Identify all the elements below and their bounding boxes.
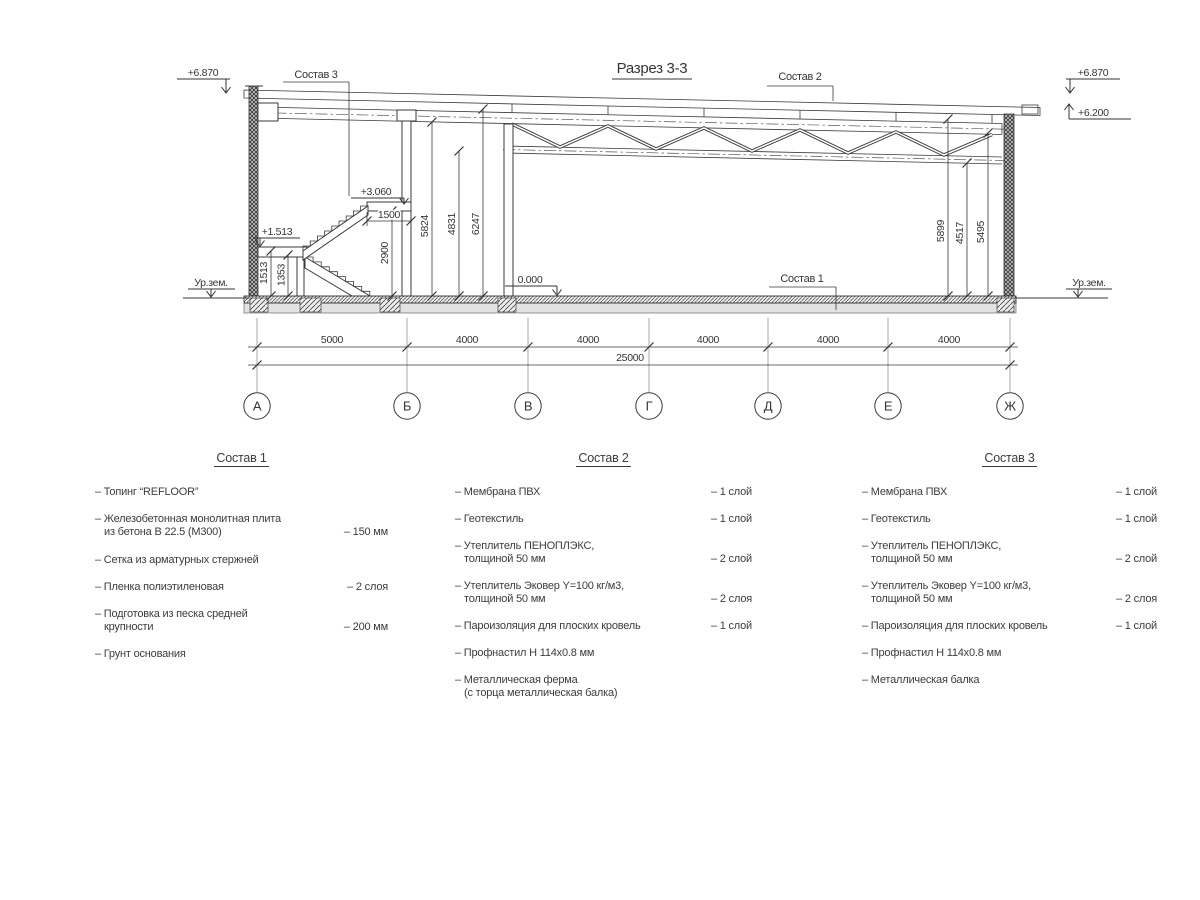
vdim-4517: 4517 bbox=[954, 159, 972, 301]
vdim-4831: 4831 bbox=[446, 147, 464, 301]
elevation-label: +1.513 bbox=[262, 226, 293, 238]
drawing-title: Разрез 3-3 bbox=[612, 60, 692, 79]
elevation-mark-stair-top: +3.060 bbox=[351, 186, 409, 204]
material-item: – Профнастил Н 114х0.8 мм bbox=[862, 647, 1157, 660]
vdim-label: 6247 bbox=[470, 212, 482, 235]
upper-flight bbox=[303, 206, 368, 260]
elevation-label: +6.200 bbox=[1078, 107, 1109, 119]
vdim-6247: 6247 bbox=[470, 105, 488, 301]
axis-bubble: Е bbox=[875, 393, 901, 419]
axis-bubble: Д bbox=[755, 393, 781, 419]
axis-label: Д bbox=[764, 399, 773, 414]
material-item: – Сетка из арматурных стержней bbox=[95, 554, 388, 567]
column-cap bbox=[397, 110, 416, 121]
axis-bubble: В bbox=[515, 393, 541, 419]
axis-label: В bbox=[524, 399, 532, 414]
ground-label: Ур.зем. bbox=[1072, 277, 1106, 289]
page-title: Разрез 3-3 bbox=[617, 60, 688, 77]
vdim-label: 4831 bbox=[446, 212, 458, 235]
composition-1: Состав 1 – Топинг “REFLOOR” – Железобето… bbox=[95, 452, 388, 675]
vdim-label: 4517 bbox=[954, 221, 966, 244]
elevation-mark-stair-mid: +1.513 bbox=[253, 226, 300, 247]
axis-label: Б bbox=[403, 399, 411, 414]
vdim-label: 5824 bbox=[419, 214, 431, 237]
vdim-5824: 5824 bbox=[419, 118, 437, 301]
axis-bubble: Г bbox=[636, 393, 662, 419]
leader-label: Состав 3 bbox=[294, 69, 337, 81]
stair-support-wall bbox=[297, 257, 304, 296]
vdim-label: 2900 bbox=[379, 241, 391, 264]
column-truss-end bbox=[504, 124, 513, 296]
span-dim-label: 4000 bbox=[577, 334, 600, 346]
material-item: – Утеплитель ПЕНОПЛЭКС,толщиной 50 мм – … bbox=[455, 540, 752, 566]
span-dim-label: 5000 bbox=[321, 334, 344, 346]
span-dim-label: 4000 bbox=[817, 334, 840, 346]
elevation-label: +3.060 bbox=[361, 186, 392, 198]
section-drawing: Разрез 3-3 bbox=[0, 0, 1200, 445]
axis-label: Г bbox=[646, 399, 653, 414]
vdim-label: 5495 bbox=[975, 220, 987, 243]
composition-2: Состав 2 – Мембрана ПВХ – 1 слой – Геоте… bbox=[455, 452, 752, 714]
material-item: – Пароизоляция для плоских кровель – 1 с… bbox=[455, 620, 752, 633]
drawing-sheet: Разрез 3-3 bbox=[0, 0, 1200, 900]
roof-assembly bbox=[244, 86, 1040, 116]
span-dim-label: 4000 bbox=[697, 334, 720, 346]
elevation-mark-top-left: +6.870 bbox=[177, 67, 231, 93]
material-item: – Пленка полиэтиленовая – 2 слоя bbox=[95, 581, 388, 594]
material-item: – Железобетонная монолитная плитаиз бето… bbox=[95, 513, 388, 539]
elevation-label: +6.870 bbox=[188, 67, 219, 79]
material-item: – Металлическая балка bbox=[862, 674, 1157, 687]
material-item: – Утеплитель ПЕНОПЛЭКС,толщиной 50 мм – … bbox=[862, 540, 1157, 566]
vdim-label: 1353 bbox=[276, 263, 288, 286]
material-item: – Грунт основания bbox=[95, 648, 388, 661]
leader-sostav3: Состав 3 bbox=[283, 69, 349, 196]
ground-level-mark-left: Ур.зем. bbox=[188, 277, 235, 297]
leader-label: Состав 2 bbox=[778, 71, 821, 83]
composition-3-title: Состав 3 bbox=[862, 452, 1157, 465]
material-item: – Металлическая ферма(с торца металличес… bbox=[455, 674, 752, 700]
material-item: – Пароизоляция для плоских кровель – 1 с… bbox=[862, 620, 1157, 633]
purlin-ticks bbox=[512, 104, 992, 124]
total-dim-label: 25000 bbox=[616, 352, 644, 364]
axis-bubbles: А Б В Г Д Е Ж bbox=[244, 393, 1023, 419]
axis-bubble: Ж bbox=[997, 393, 1023, 419]
leader-sostav2: Состав 2 bbox=[767, 71, 833, 101]
vdim-5495: 5495 bbox=[975, 129, 993, 301]
ground-label: Ур.зем. bbox=[194, 277, 228, 289]
elevation-label: +6.870 bbox=[1078, 67, 1109, 79]
span-dim-label: 4000 bbox=[938, 334, 961, 346]
elevation-mark-top-right: +6.870 bbox=[1066, 67, 1121, 93]
right-wall bbox=[1004, 114, 1014, 296]
beam-bracket bbox=[258, 103, 278, 121]
vdim-label: 1513 bbox=[258, 261, 270, 284]
vdim-5899: 5899 bbox=[935, 115, 953, 301]
span-dimension-row: 5000 4000 4000 4000 4000 4000 bbox=[248, 334, 1018, 352]
material-item: – Геотекстиль – 1 слой bbox=[455, 513, 752, 526]
material-item: – Подготовка из песка среднейкрупности –… bbox=[95, 608, 388, 634]
vdim-1353: 1353 bbox=[276, 251, 293, 301]
material-item: – Профнастил Н 114х0.8 мм bbox=[455, 647, 752, 660]
axis-bubble: Б bbox=[394, 393, 420, 419]
axis-label: Е bbox=[884, 399, 893, 414]
span-dim-label: 4000 bbox=[456, 334, 479, 346]
composition-1-title: Состав 1 bbox=[95, 452, 388, 465]
material-item: – Мембрана ПВХ – 1 слой bbox=[455, 486, 752, 499]
hdim-label: 1500 bbox=[378, 209, 401, 221]
material-item: – Утеплитель Эковер Y=100 кг/м3,толщиной… bbox=[862, 580, 1157, 606]
elevation-label: 0.000 bbox=[518, 274, 543, 286]
elevation-mark-truss-bearing: +6.200 bbox=[1065, 104, 1132, 119]
material-item: – Утеплитель Эковер Y=100 кг/м3,толщиной… bbox=[455, 580, 752, 606]
axis-label: Ж bbox=[1004, 399, 1016, 414]
vdim-label: 5899 bbox=[935, 219, 947, 242]
axis-label: А bbox=[253, 399, 262, 414]
composition-2-title: Состав 2 bbox=[455, 452, 752, 465]
mid-landing bbox=[258, 247, 307, 257]
material-item: – Топинг “REFLOOR” bbox=[95, 486, 388, 499]
roof-beam-top-chord bbox=[254, 103, 1006, 135]
ground-level-mark-right: Ур.зем. bbox=[1066, 277, 1112, 297]
overall-dimension-row: 25000 bbox=[248, 352, 1018, 370]
material-item: – Мембрана ПВХ – 1 слой bbox=[862, 486, 1157, 499]
floor-slab bbox=[183, 296, 1108, 313]
left-wall bbox=[249, 86, 258, 296]
composition-3: Состав 3 – Мембрана ПВХ – 1 слой – Геоте… bbox=[862, 452, 1157, 701]
material-item: – Геотекстиль – 1 слой bbox=[862, 513, 1157, 526]
leader-label: Состав 1 bbox=[780, 273, 823, 285]
axis-bubble: А bbox=[244, 393, 270, 419]
